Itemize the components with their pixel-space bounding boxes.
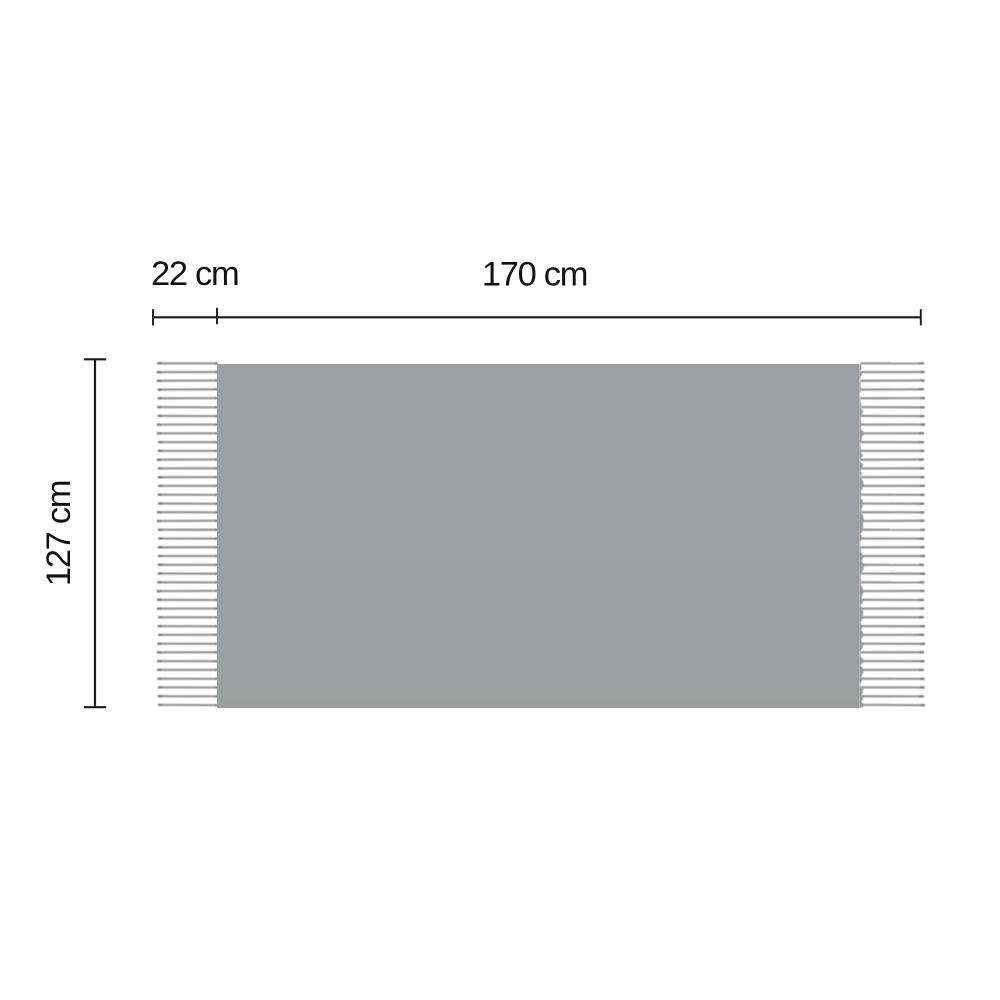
svg-text:22 cm: 22 cm [151,255,238,293]
svg-text:170 cm: 170 cm [482,256,587,294]
svg-text:127 cm: 127 cm [40,481,78,586]
